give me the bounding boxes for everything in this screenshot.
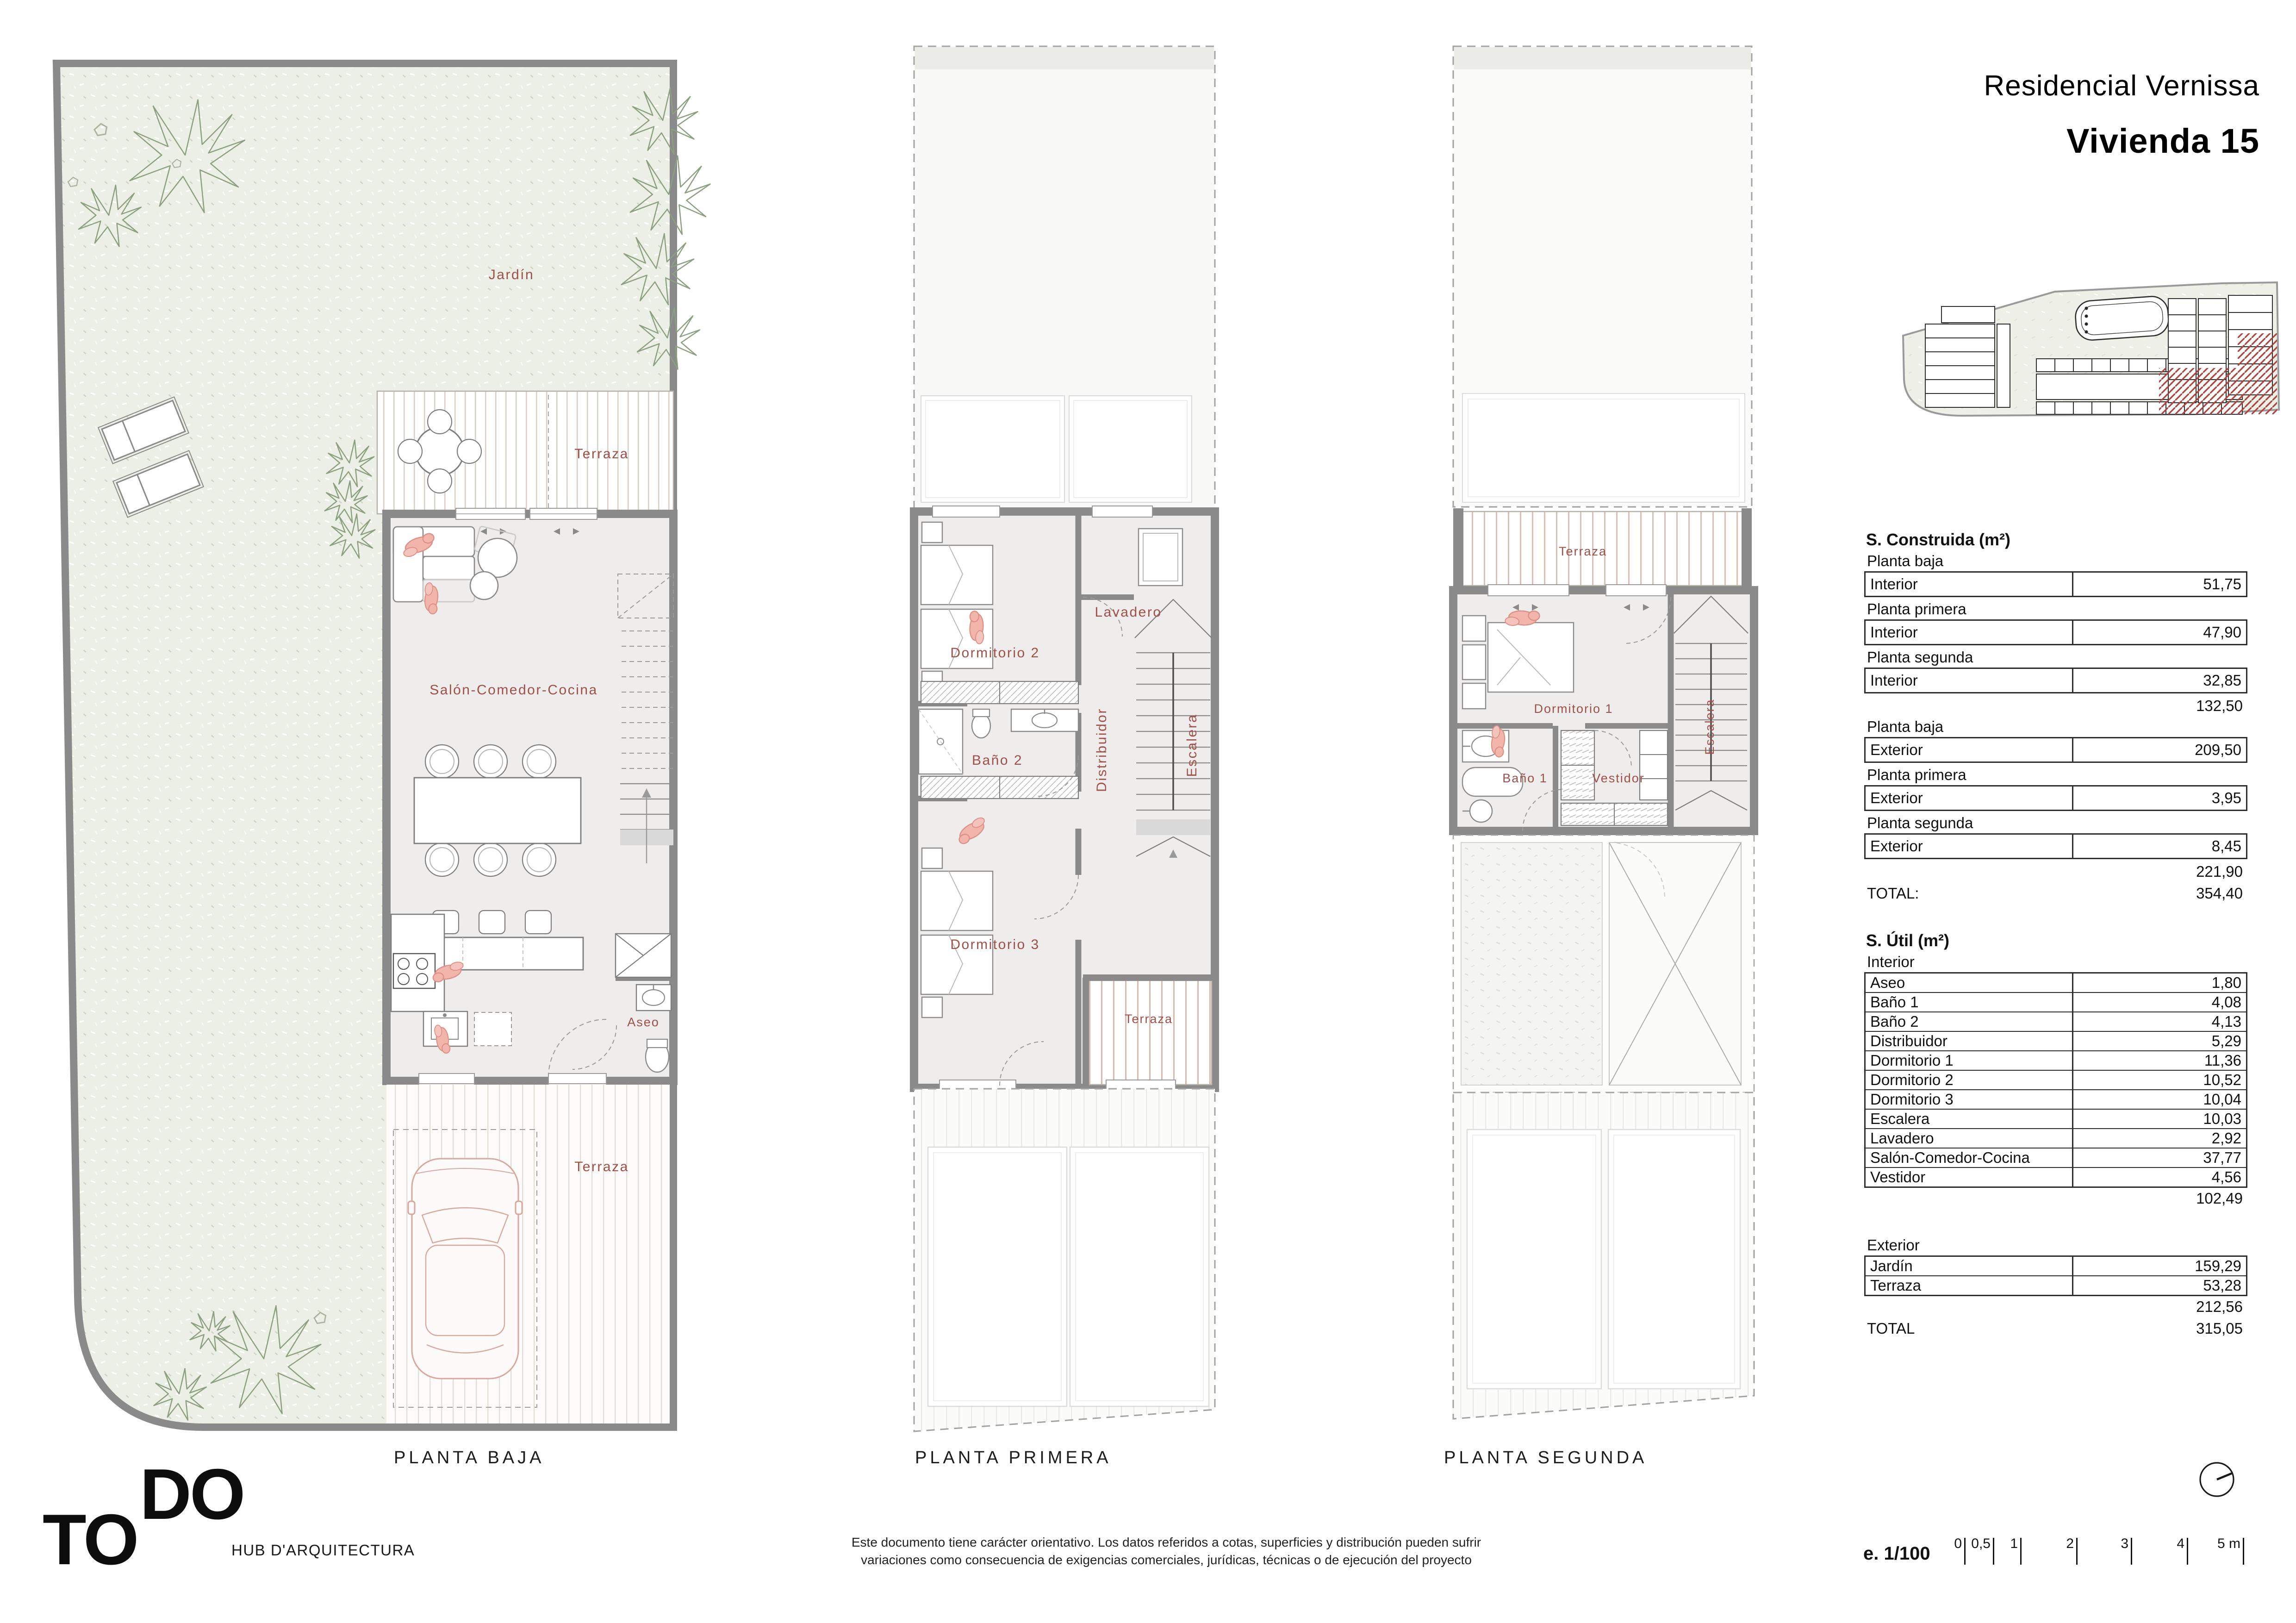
table-row: Aseo1,80 [1866, 974, 2246, 993]
room-label-terraza-top: Terraza [574, 446, 629, 462]
planta-segunda-drawing: Terraza Dormitorio 1 Baño 1 Vestidor Esc… [1446, 42, 1754, 1442]
exterior-subtotal: 212,56 [1864, 1296, 2247, 1317]
section-heading: Planta primera [1864, 599, 2247, 619]
interior-rows: Aseo1,80 Baño 14,08 Baño 24,13 Distribui… [1864, 972, 2247, 1188]
table-row: Terraza53,28 [1866, 1276, 2246, 1295]
room-label-terraza-p2: Terraza [1559, 544, 1607, 558]
table-row: Dormitorio 310,04 [1866, 1090, 2246, 1110]
exterior-rows: Jardín159,29 Terraza53,28 [1864, 1255, 2247, 1296]
interior-subtotal: 102,49 [1864, 1188, 2247, 1209]
section-heading: Planta baja [1864, 551, 2247, 571]
table-row: Exterior 8,45 [1864, 833, 2247, 859]
scale-tick: 4 [2187, 1538, 2188, 1565]
interior-subtotal: 132,50 [1864, 695, 2247, 717]
roof-band [1453, 835, 1754, 1092]
table-row: Escalera10,03 [1866, 1110, 2246, 1129]
room-label-aseo: Aseo [627, 1015, 660, 1029]
table-row: Distribuidor5,29 [1866, 1032, 2246, 1051]
scale-tick: 0 [1964, 1538, 1966, 1565]
table-row: Interior 32,85 [1864, 668, 2247, 693]
room-label-bano1: Baño 1 [1502, 771, 1548, 785]
terraza-deck [377, 391, 673, 514]
table-row: Interior 51,75 [1864, 571, 2247, 597]
room-label-terraza-p1: Terraza [1125, 1012, 1173, 1026]
scale-tick: 5 m [2243, 1538, 2244, 1565]
unit-title: Vivienda 15 [2066, 121, 2259, 161]
table-row: Exterior 209,50 [1864, 737, 2247, 763]
project-title: Residencial Vernissa [1984, 69, 2259, 102]
site-pool [2074, 295, 2169, 341]
table-row: Vestidor4,56 [1866, 1168, 2246, 1186]
construida-table: S. Construida (m²) Planta baja Interior … [1864, 529, 2247, 905]
caption-planta-primera: PLANTA PRIMERA [915, 1448, 1112, 1468]
table-row: Baño 24,13 [1866, 1012, 2246, 1032]
section-heading: Interior [1864, 952, 2247, 972]
room-label-escalera: Escalera [1184, 714, 1200, 777]
room-label-terraza-front: Terraza [574, 1159, 629, 1174]
room-label-lavadero: Lavadero [1095, 605, 1162, 620]
car-terrace [386, 1085, 670, 1423]
planta-baja-drawing: Jardín Terraza Salón-Comedor-Cocina Aseo… [46, 49, 683, 1442]
scale-tick: 0,5 [1993, 1538, 1994, 1565]
table-title: S. Construida (m²) [1864, 529, 2247, 551]
caption-planta-segunda: PLANTA SEGUNDA [1444, 1448, 1647, 1468]
disclaimer-line1: Este documento tiene carácter orientativ… [701, 1534, 1631, 1551]
ghost-garden-below [1453, 46, 1752, 507]
room-label-vestidor: Vestidor [1592, 771, 1645, 785]
room-label-bano2: Baño 2 [972, 753, 1023, 768]
dining-set [414, 745, 581, 876]
scale-label: e. 1/100 [1863, 1543, 1930, 1564]
room-label-escalera-p2: Escalera [1703, 699, 1717, 755]
table-row: Jardín159,29 [1866, 1257, 2246, 1276]
section-heading: Planta segunda [1864, 647, 2247, 668]
logo-to: TO [43, 1504, 137, 1575]
disclaimer-line2: variaciones como consecuencia de exigenc… [701, 1551, 1631, 1569]
table-row: Dormitorio 111,36 [1866, 1051, 2246, 1071]
planta-primera-drawing: Dormitorio 2 Lavadero Distribuidor Escal… [907, 42, 1222, 1442]
ghost-garden-below [914, 46, 1215, 512]
table-row: Exterior 3,95 [1864, 785, 2247, 811]
ghost-roof-below [1453, 1092, 1754, 1419]
room-label-dormitorio2: Dormitorio 2 [950, 645, 1039, 661]
car [408, 1159, 522, 1379]
room-label-dormitorio3: Dormitorio 3 [950, 937, 1039, 952]
ghost-roof-below [914, 1089, 1215, 1431]
room-label-salon: Salón-Comedor-Cocina [429, 682, 597, 698]
section-heading: Exterior [1864, 1235, 2247, 1255]
room-label-dormitorio1: Dormitorio 1 [1534, 702, 1613, 716]
table-row: Lavadero2,92 [1866, 1129, 2246, 1149]
table-total: TOTAL 315,05 [1864, 1317, 2247, 1340]
scale-tick: 1 [2020, 1538, 2022, 1565]
room-label-distribuidor: Distribuidor [1094, 708, 1109, 792]
scale-bar: 0 0,5 1 2 3 4 5 m [1939, 1536, 2263, 1573]
plan-sheet: { "header": { "project": "Residencial Ve… [0, 0, 2296, 1623]
room-label-jardin: Jardín [489, 267, 534, 282]
table-row: Interior 47,90 [1864, 619, 2247, 645]
scale-tick: 3 [2131, 1538, 2132, 1565]
exterior-subtotal: 221,90 [1864, 861, 2247, 882]
firm-name: HUB D'ARQUITECTURA [231, 1542, 415, 1559]
scale-tick: 2 [2076, 1538, 2078, 1565]
util-table: S. Útil (m²) Interior Aseo1,80 Baño 14,0… [1864, 930, 2247, 1340]
section-heading: Planta segunda [1864, 813, 2247, 833]
table-row: Baño 14,08 [1866, 993, 2246, 1012]
north-indicator-icon [2194, 1457, 2240, 1504]
caption-planta-baja: PLANTA BAJA [394, 1448, 545, 1468]
section-heading: Planta baja [1864, 717, 2247, 737]
section-heading: Planta primera [1864, 765, 2247, 785]
table-total: TOTAL: 354,40 [1864, 882, 2247, 905]
table-row: Salón-Comedor-Cocina37,77 [1866, 1149, 2246, 1168]
table-row: Dormitorio 210,52 [1866, 1071, 2246, 1090]
logo-do: DO [140, 1458, 244, 1530]
site-key-plan [1898, 255, 2282, 426]
disclaimer: Este documento tiene carácter orientativ… [701, 1534, 1631, 1569]
table-title: S. Útil (m²) [1864, 930, 2247, 952]
